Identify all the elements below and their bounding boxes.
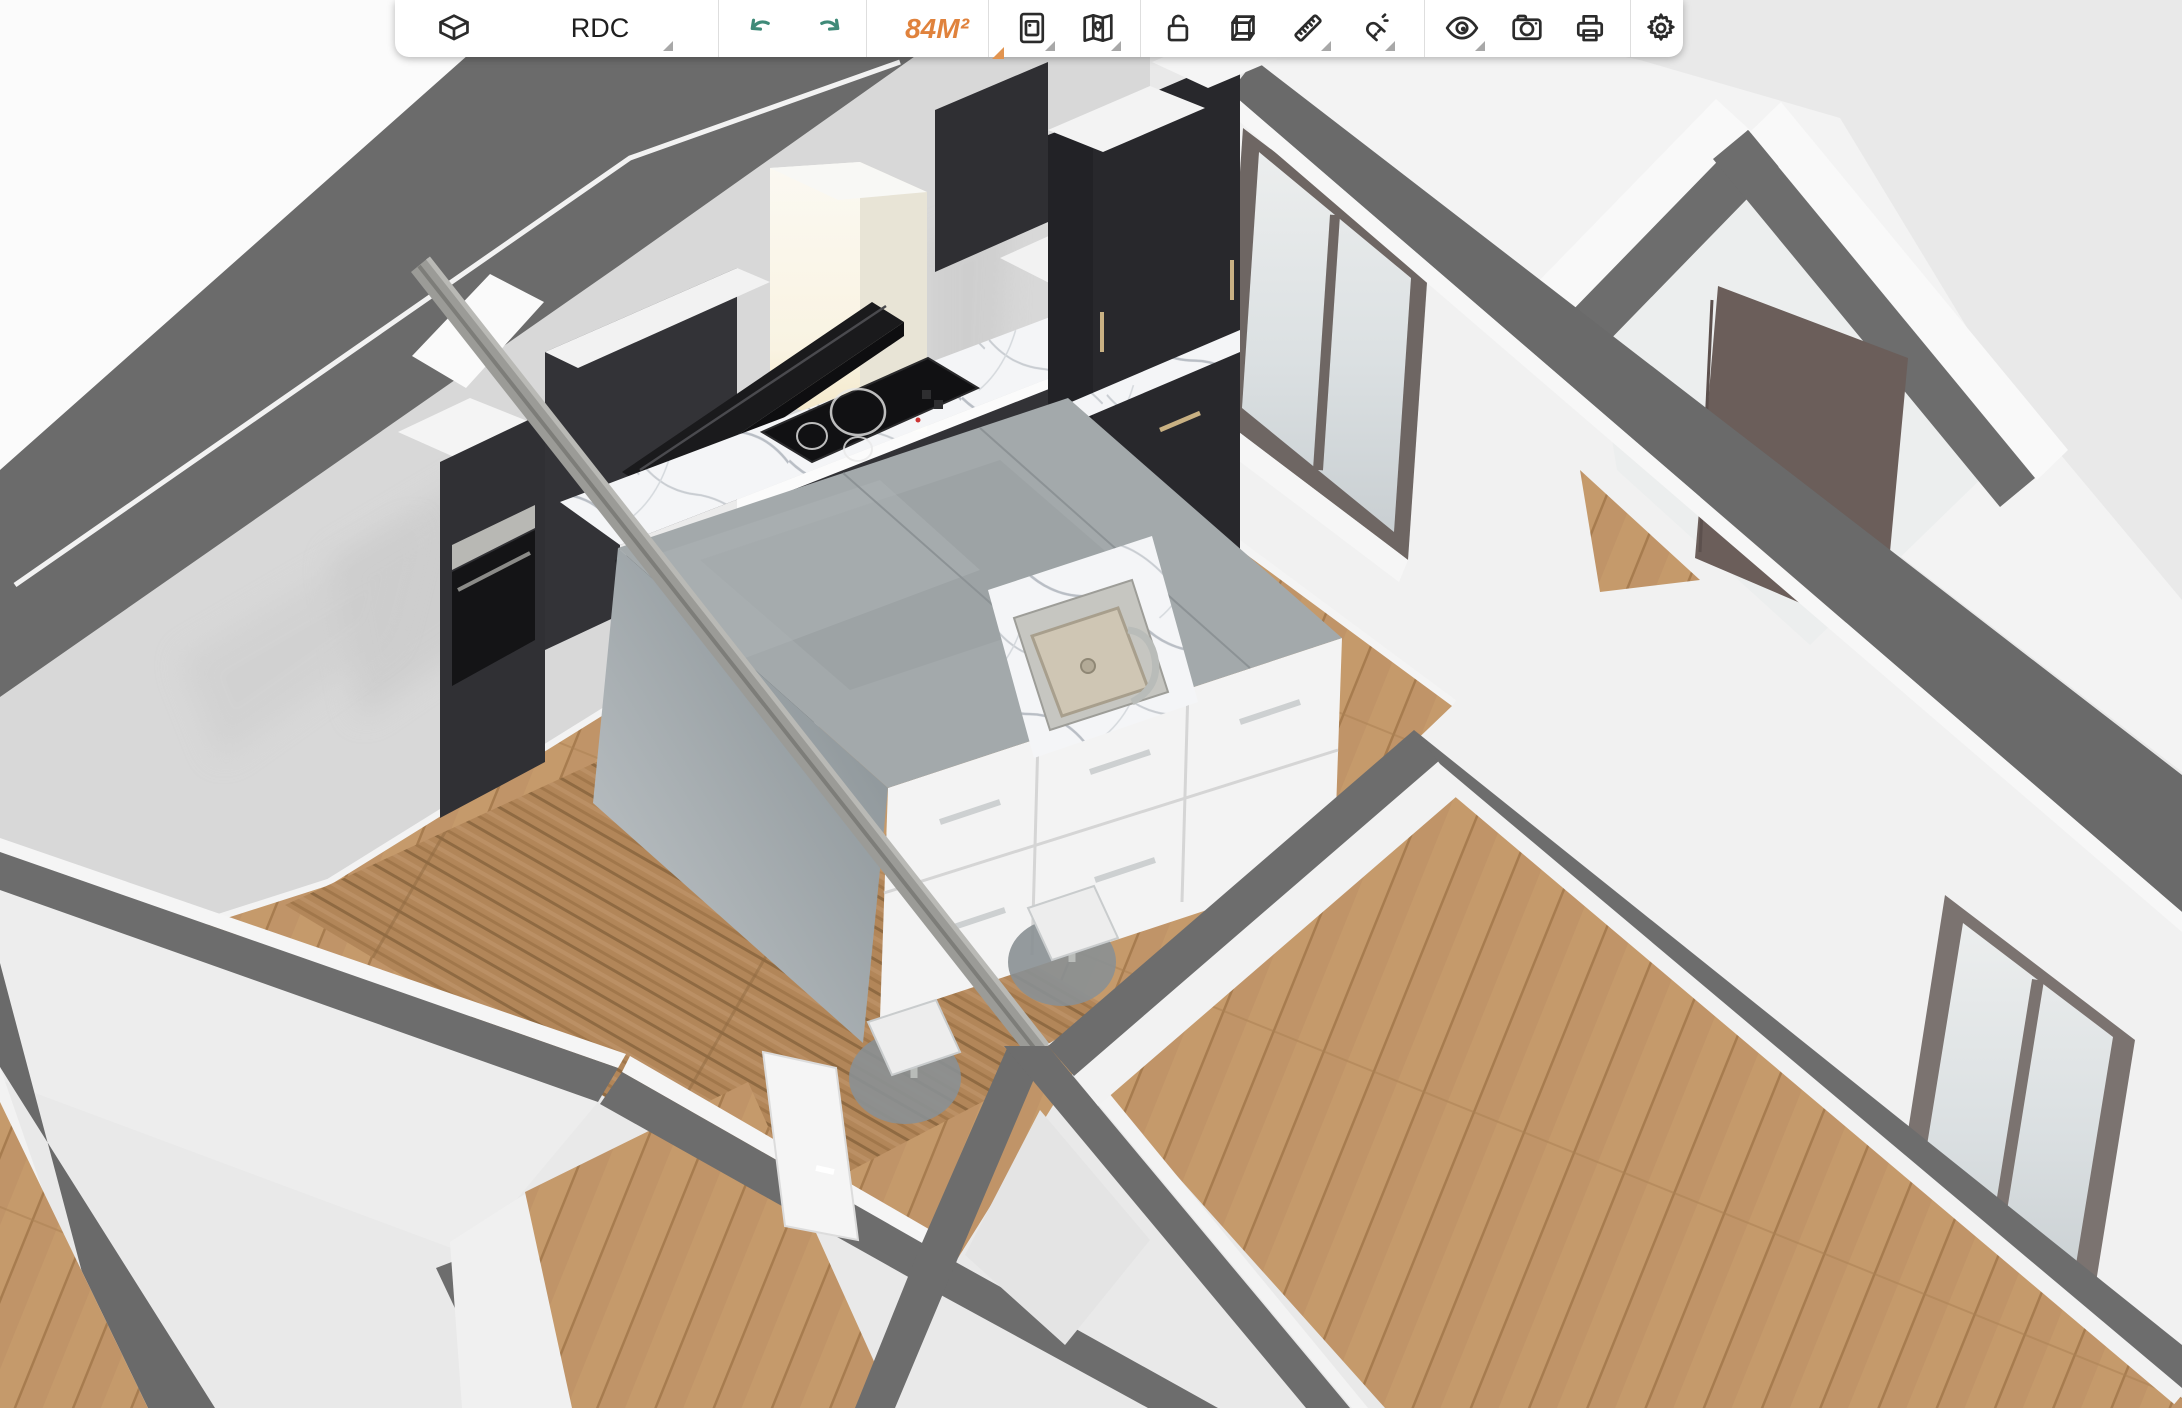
chevron-down-icon xyxy=(1475,41,1485,51)
gear-icon xyxy=(1642,9,1680,47)
redo-arrow-icon xyxy=(811,9,849,47)
redo-button[interactable] xyxy=(811,9,849,47)
undo-button[interactable] xyxy=(741,9,779,47)
chevron-down-icon xyxy=(1321,41,1331,51)
floorplan-3d-viewport[interactable] xyxy=(0,0,2182,1408)
divider xyxy=(1630,0,1631,57)
snap-button[interactable] xyxy=(1353,9,1391,47)
camera-icon xyxy=(1508,9,1546,47)
area-badge-label: 84M² xyxy=(905,13,969,44)
floor-selector-label: RDC xyxy=(571,13,630,43)
chevron-down-icon xyxy=(992,47,1004,59)
view-mode-button[interactable] xyxy=(435,9,473,47)
camera-button[interactable] xyxy=(1508,9,1546,47)
snapshot-button[interactable] xyxy=(1013,9,1051,47)
divider xyxy=(1424,0,1425,57)
divider xyxy=(866,0,867,57)
visibility-button[interactable] xyxy=(1443,9,1481,47)
lock-button[interactable] xyxy=(1159,9,1197,47)
chevron-down-icon xyxy=(1111,41,1121,51)
chevron-down-icon xyxy=(1385,41,1395,51)
box-view-button[interactable] xyxy=(1224,9,1262,47)
undo-arrow-icon xyxy=(741,9,779,47)
divider xyxy=(1140,0,1141,57)
print-button[interactable] xyxy=(1571,9,1609,47)
area-badge[interactable]: 84M² xyxy=(882,0,992,57)
chevron-down-icon xyxy=(663,41,673,51)
main-toolbar: RDC 84M² xyxy=(395,0,1683,57)
settings-button[interactable] xyxy=(1642,9,1680,47)
floor-selector[interactable]: RDC xyxy=(525,0,675,57)
printer-icon xyxy=(1571,9,1609,47)
divider xyxy=(988,0,989,57)
plan-button[interactable] xyxy=(1079,9,1117,47)
divider xyxy=(718,0,719,57)
box-3d-icon xyxy=(435,9,473,47)
measure-button[interactable] xyxy=(1289,9,1327,47)
chevron-down-icon xyxy=(1045,41,1055,51)
cube-icon xyxy=(1224,9,1262,47)
open-lock-icon xyxy=(1159,9,1197,47)
